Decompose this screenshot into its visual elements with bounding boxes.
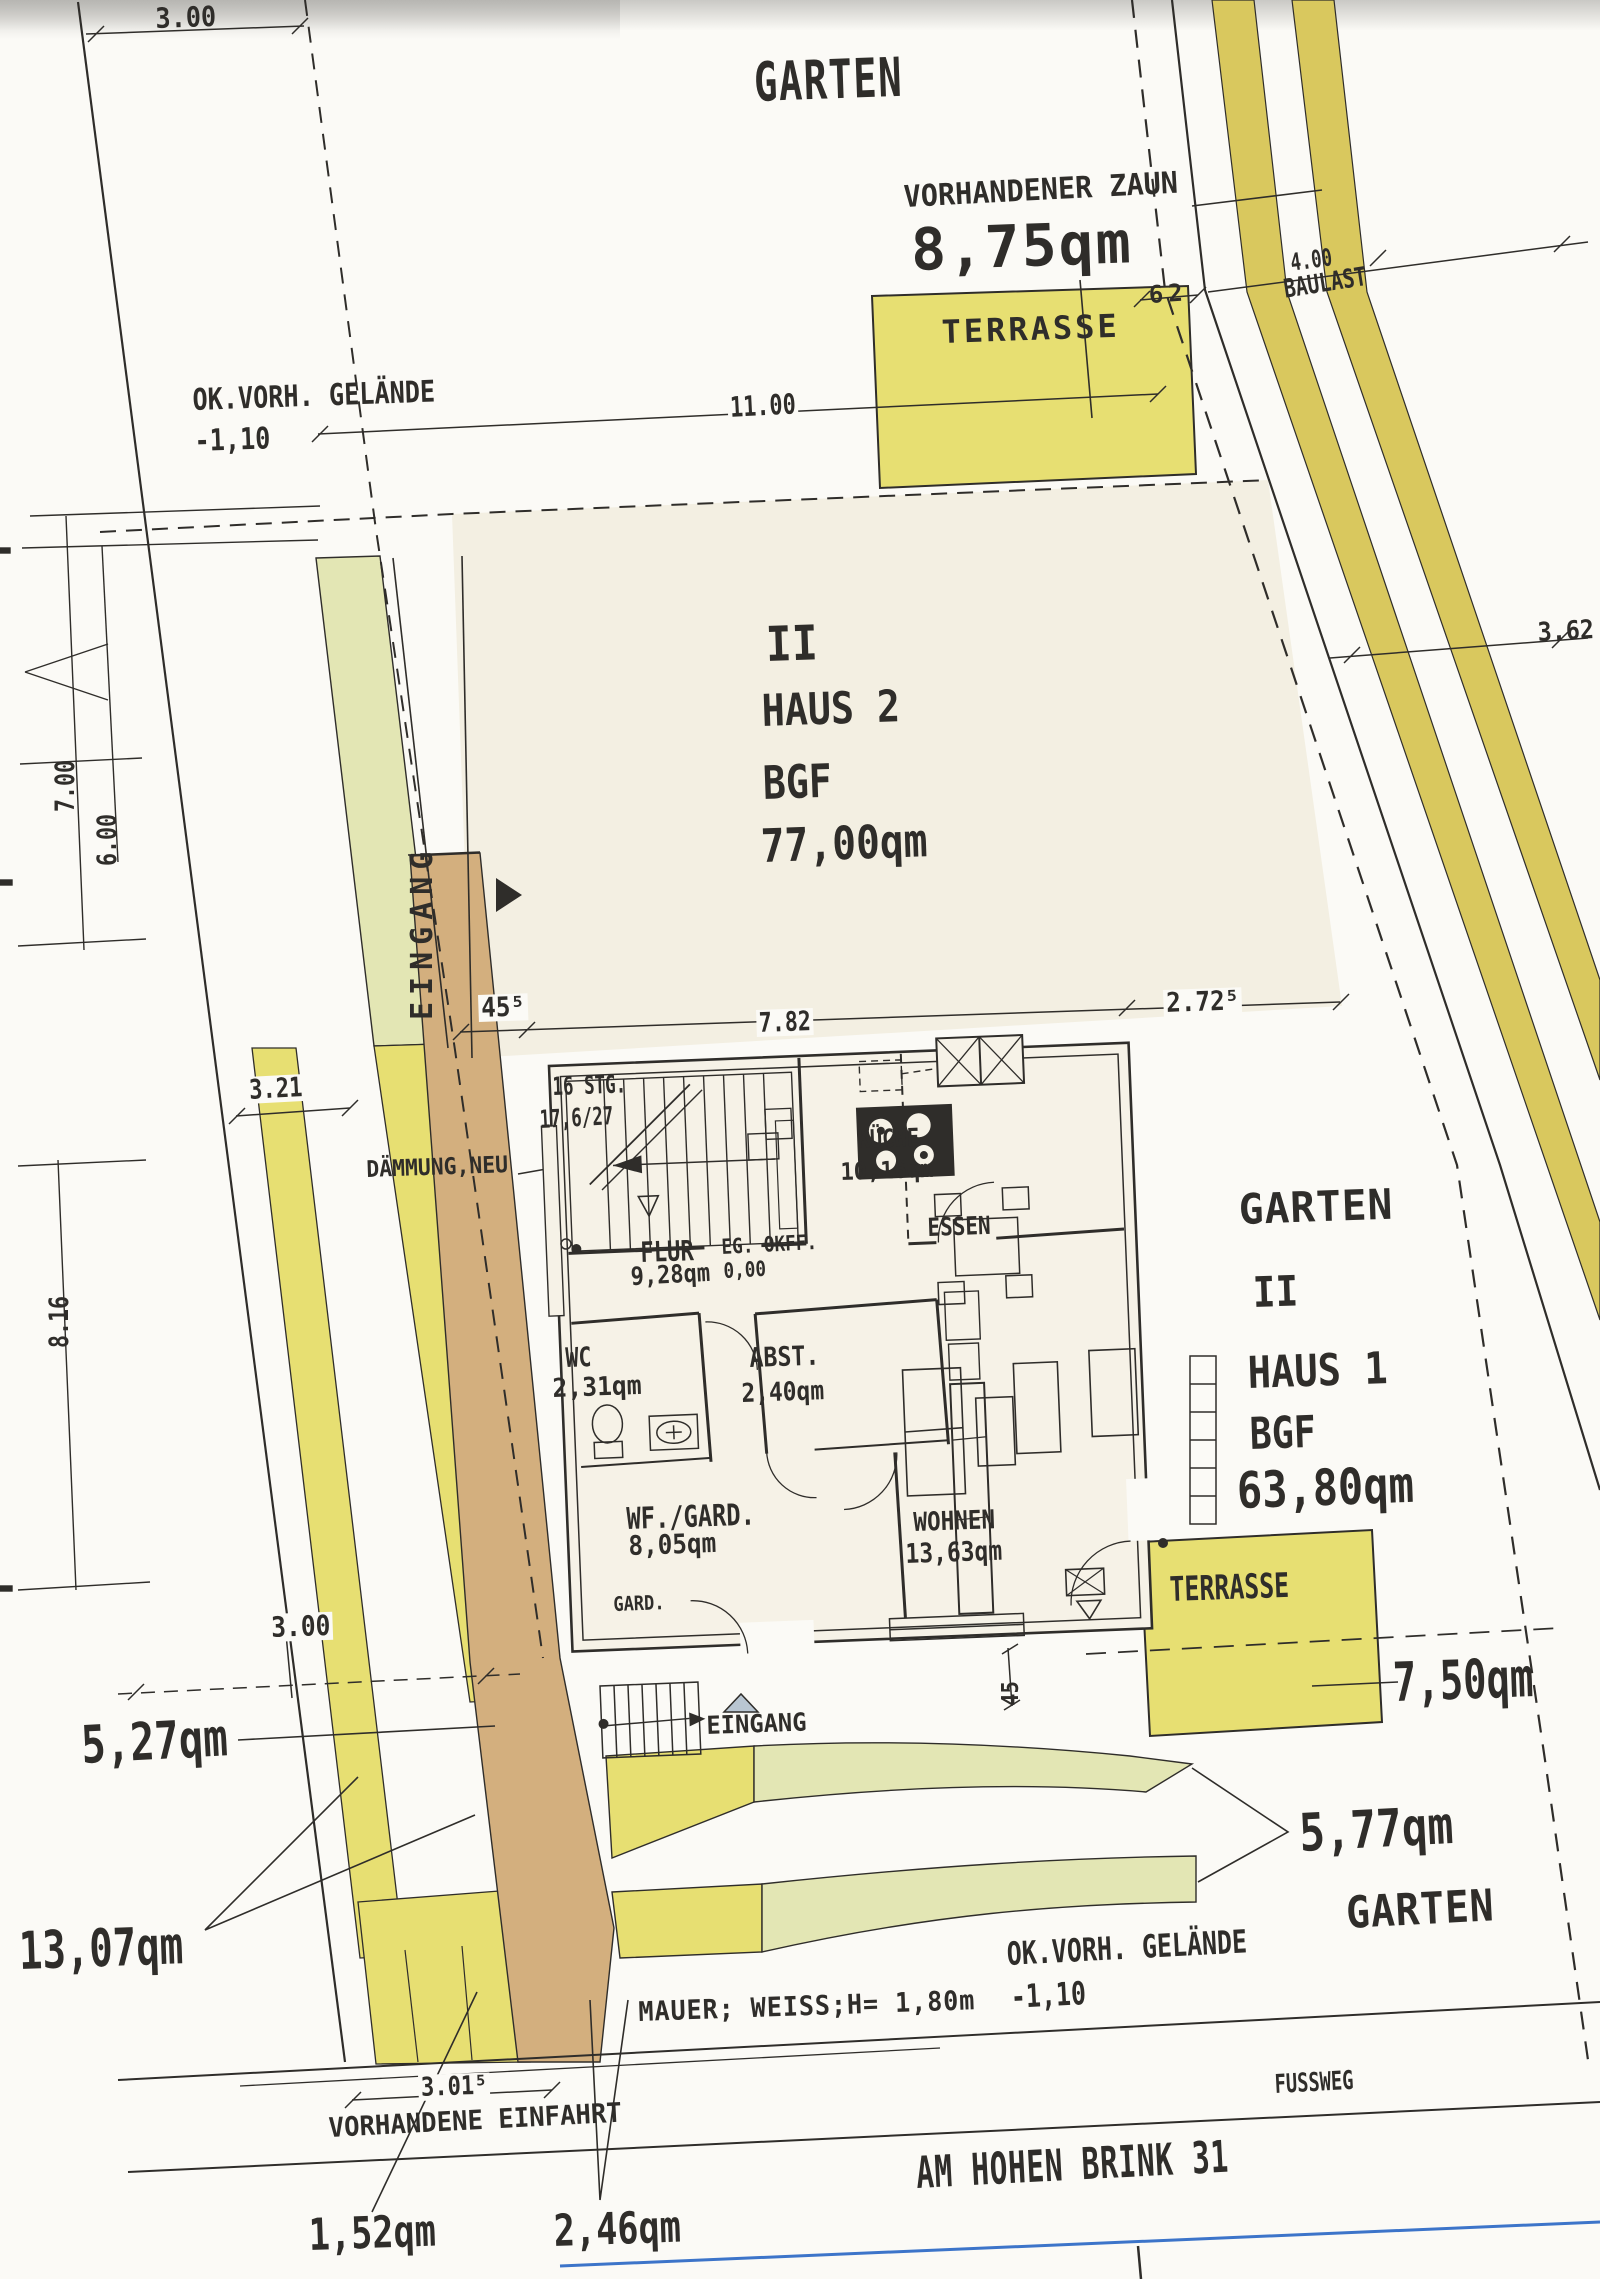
dim-3-21: 3.21 [246, 1074, 306, 1104]
terrasse-top-label: TERRASSE [941, 310, 1120, 348]
scanned-floor-plan-page: 3.00GARTENVORHANDENER ZAUN8,75qmTERRASSE… [0, 0, 1600, 2279]
essen: ESSEN [927, 1213, 991, 1240]
street-name: AM HOHEN BRINK 31 [915, 2136, 1230, 2196]
haus1-ii: II [1252, 1270, 1299, 1314]
haus2-bgf: BGF [762, 758, 833, 806]
wf-gard-area: 8,05qm [628, 1530, 717, 1560]
vorhandener-zaun: VORHANDENER ZAUN [903, 169, 1179, 213]
garten-bottom: GARTEN [1345, 1884, 1496, 1936]
stairs-17-6-27: 17,6/27 [539, 1103, 614, 1132]
wc: WC [565, 1344, 592, 1372]
vorhandene-einfahrt: VORHANDENE EINFAHRT [328, 2100, 622, 2142]
minus-1-10-top: -1,10 [194, 424, 271, 457]
flur-area: 9,28qm [630, 1260, 711, 1289]
dim-2-72-5: 2.72⁵ [1163, 987, 1242, 1017]
labels-layer: 3.00GARTENVORHANDENER ZAUN8,75qmTERRASSE… [0, 0, 1600, 2279]
abst-area: 2,40qm [741, 1378, 825, 1407]
terrasse-right-area: 7,50qm [1392, 1651, 1534, 1710]
ok-vorh-gelaende-bottom: OK.VORH. GELÄNDE [1006, 1925, 1248, 1970]
eg-okff: EG. OKFF. [721, 1232, 818, 1258]
wohnen-area: 13,63qm [905, 1538, 1003, 1568]
dim-11-00: 11.00 [727, 390, 799, 422]
dim-3-01-5: 3.01⁵ [418, 2072, 491, 2100]
area-5-27: 5,27qm [80, 1712, 229, 1772]
haus2-area: 77,00qm [760, 817, 928, 869]
dim-45-right: 45 [1000, 1681, 1023, 1706]
wc-area: 2,31qm [552, 1373, 642, 1402]
fussweg: FUSSWEG [1274, 2068, 1354, 2098]
area-1-52: 1,52qm [308, 2210, 437, 2258]
area-2-46: 2,46qm [553, 2206, 682, 2254]
kueche-area: 10,16qm [840, 1157, 934, 1184]
haus1-name: HAUS 1 [1247, 1347, 1388, 1396]
minus-1-10-bottom: -1,10 [1010, 1977, 1087, 2013]
abst: ABST. [749, 1343, 820, 1372]
zaun-area: 8,75qm [910, 213, 1133, 279]
dim-8-16: 8.16 [46, 1296, 73, 1348]
garten-right: GARTEN [1238, 1184, 1394, 1231]
dim-3-00-left: 3.00 [268, 1612, 334, 1642]
eg-okff-val: 0,00 [723, 1259, 767, 1282]
eingang-bottom: EINGANG [706, 1710, 807, 1738]
haus1-area: 63,80qm [1236, 1460, 1415, 1516]
area-5-77: 5,77qm [1298, 1800, 1455, 1860]
mauer-weiss: MAUER; WEISS;H= 1,80m [638, 1987, 976, 2026]
wohnen: WOHNEN [913, 1507, 996, 1536]
ok-vorh-gelaende-top: OK.VORH. GELÄNDE [192, 378, 436, 416]
kueche: KÜCHE [857, 1125, 920, 1152]
eingang-left: EINGANG [408, 845, 438, 1020]
dim-45-5: 45⁵ [478, 993, 528, 1022]
area-13-07: 13,07qm [18, 1920, 184, 1978]
haus2-name: HAUS 2 [761, 685, 901, 734]
stairs-16-stg: 16 STG. [552, 1071, 627, 1099]
haus1-bgf: BGF [1249, 1411, 1316, 1457]
garten-top: GARTEN [753, 51, 904, 110]
gard: GARD. [613, 1592, 665, 1614]
dim-3-00-top: 3.00 [155, 3, 217, 33]
dim-62: 62 [1148, 280, 1188, 307]
dim-3-62: 3.62 [1537, 617, 1595, 646]
haus2-ii: II [765, 619, 819, 669]
terrasse-right-label: TERRASSE [1169, 1569, 1290, 1607]
dim-6-00: 6.00 [94, 814, 121, 866]
dim-7-00: 7.00 [52, 760, 79, 812]
dim-7-82: 7.82 [756, 1008, 814, 1037]
daemmung-neu: DÄMMUNG,NEU [366, 1154, 508, 1182]
